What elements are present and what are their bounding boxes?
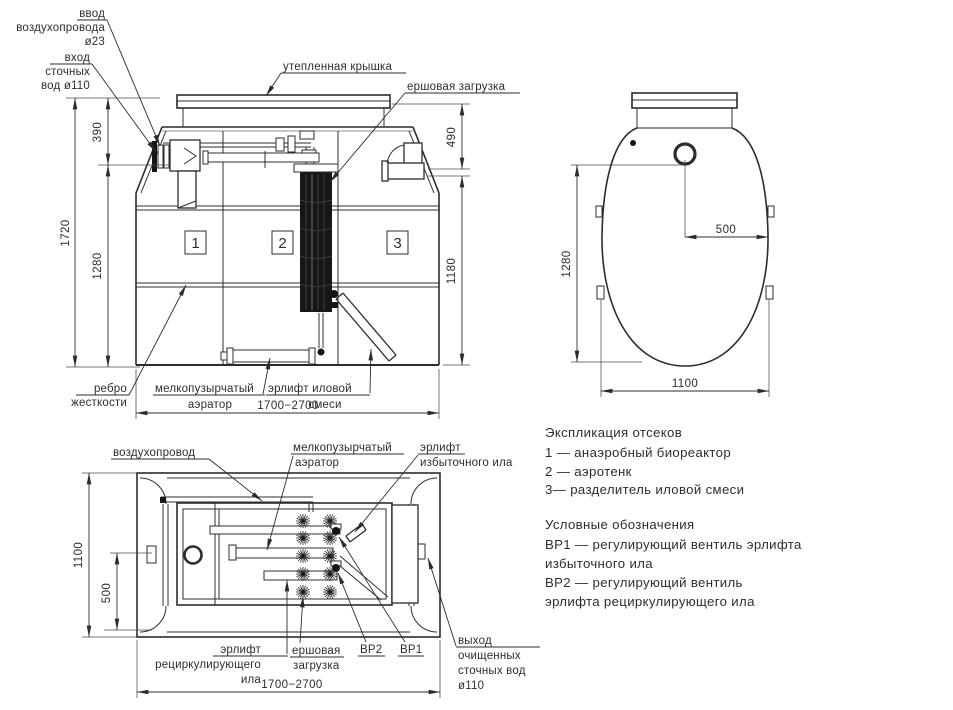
callout-aerator-front-line1: мелкопузырчатый <box>155 383 254 395</box>
legend-symbol-line-1: ВР1 — регулирующий вентиль эрлифта <box>545 537 802 552</box>
outlet-elbow <box>382 143 424 181</box>
callout-stiffening-rib-line1: ребро <box>94 383 127 395</box>
callout-recirc-airlift-line2: рециркулирующего <box>155 659 261 671</box>
dim-inlet-depth: 390 <box>92 122 104 142</box>
drawing-sheet: 1 2 3 1720 390 1280 490 1180 <box>0 0 953 710</box>
callout-air-inlet-line3: ø23 <box>85 36 105 48</box>
legend-compartment-item-1: 1 — анаэробный биореактор <box>545 445 731 460</box>
legend-symbol-line-2: избыточного ила <box>545 556 653 571</box>
legend-compartments-title: Экспликация отсеков <box>545 425 682 440</box>
legend-symbol-line-4: эрлифта рециркулирующего ила <box>545 594 755 609</box>
legend-compartment-item-3: 3— разделитель иловой смеси <box>545 482 744 497</box>
dim-side-offset: 500 <box>716 224 736 236</box>
callout-sewage-inlet-line1: вход <box>65 52 90 64</box>
callout-outlet-line1: выход <box>458 635 492 647</box>
callout-brush-media-plan-line2: загрузка <box>293 660 340 672</box>
callout-aerator-front-line2: аэратор <box>188 399 232 411</box>
technical-drawing: 1 2 3 1720 390 1280 490 1180 <box>0 0 953 710</box>
compartment-1-number: 1 <box>191 235 199 252</box>
dim-side-height: 1280 <box>561 250 573 277</box>
bottom-aerator <box>221 313 325 364</box>
brush-media-column <box>294 164 338 312</box>
callout-air-inlet-line2: воздухопровода <box>16 22 105 34</box>
air-inlet-dot <box>630 140 636 146</box>
dim-plan-half-width: 500 <box>101 583 113 603</box>
callout-air-duct: воздухопровод <box>113 447 195 459</box>
callout-outlet-line2: очищенных <box>458 650 521 662</box>
callout-stiffening-rib-line2: жесткости <box>71 397 127 409</box>
callout-sewage-inlet-line2: сточных <box>45 66 90 78</box>
dim-side-width: 1100 <box>672 378 698 390</box>
callout-sewage-inlet-line3: вод ø110 <box>41 80 90 92</box>
callout-aerator-plan-line1: мелкопузырчатый <box>293 442 392 454</box>
legend: Экспликация отсеков 1 — анаэробный биоре… <box>545 425 802 609</box>
dim-plan-width: 1100 <box>73 542 85 568</box>
callout-valve-vr2: ВР2 <box>360 644 382 656</box>
plan-view: 1100 500 1700−2700 воздухопровод мелкопу… <box>73 442 540 698</box>
callout-recirc-airlift-line3: ила <box>241 674 262 686</box>
sludge-airlift-pipe <box>327 290 396 361</box>
callout-excess-airlift-line1: эрлифт <box>420 442 461 454</box>
callout-valve-vr1: ВР1 <box>400 644 422 656</box>
callout-outlet-line4: ø110 <box>458 680 484 692</box>
compartment-markers: 1 2 3 <box>185 231 408 254</box>
dim-inner-height: 1180 <box>446 258 458 284</box>
callout-sludge-airlift-line1: эрлифт иловой <box>268 383 352 395</box>
valve-vr2-body <box>332 564 340 572</box>
dim-body-height: 1280 <box>92 252 104 279</box>
sewage-inlet-assembly <box>152 140 200 208</box>
front-view: 1 2 3 1720 390 1280 490 1180 <box>16 8 520 419</box>
compartment-3-number: 3 <box>393 235 401 252</box>
callout-brush-media-plan-line1: ершовая <box>292 645 340 657</box>
callout-recirc-airlift-line1: эрлифт <box>220 644 261 656</box>
legend-symbol-line-3: ВР2 — регулирующий вентиль <box>545 575 743 590</box>
callout-air-inlet-line1: ввод <box>79 8 105 20</box>
dim-neck-height: 490 <box>446 127 458 147</box>
valve-vr1-body <box>332 527 340 535</box>
callout-aerator-plan-line2: аэратор <box>295 457 339 469</box>
compartment-2-number: 2 <box>278 235 286 252</box>
callout-excess-airlift-line2: избыточного ила <box>420 457 513 469</box>
legend-symbols-title: Условные обозначения <box>545 517 694 532</box>
callout-sludge-airlift-line2: смеси <box>308 399 341 411</box>
callout-outlet-line3: сточных вод <box>458 665 526 677</box>
plan-left-tab <box>147 546 156 563</box>
callout-insulated-cover: утепленная крышка <box>283 61 393 73</box>
insulated-cover <box>177 95 390 127</box>
dim-plan-length: 1700−2700 <box>261 679 322 691</box>
side-view: 1280 500 1100 <box>561 93 774 397</box>
callout-brush-media-front: ершовая загрузка <box>407 81 506 93</box>
dim-total-height: 1720 <box>60 219 72 246</box>
legend-compartment-item-2: 2 — аэротенк <box>545 464 632 479</box>
plan-inlet-hole <box>185 547 202 564</box>
